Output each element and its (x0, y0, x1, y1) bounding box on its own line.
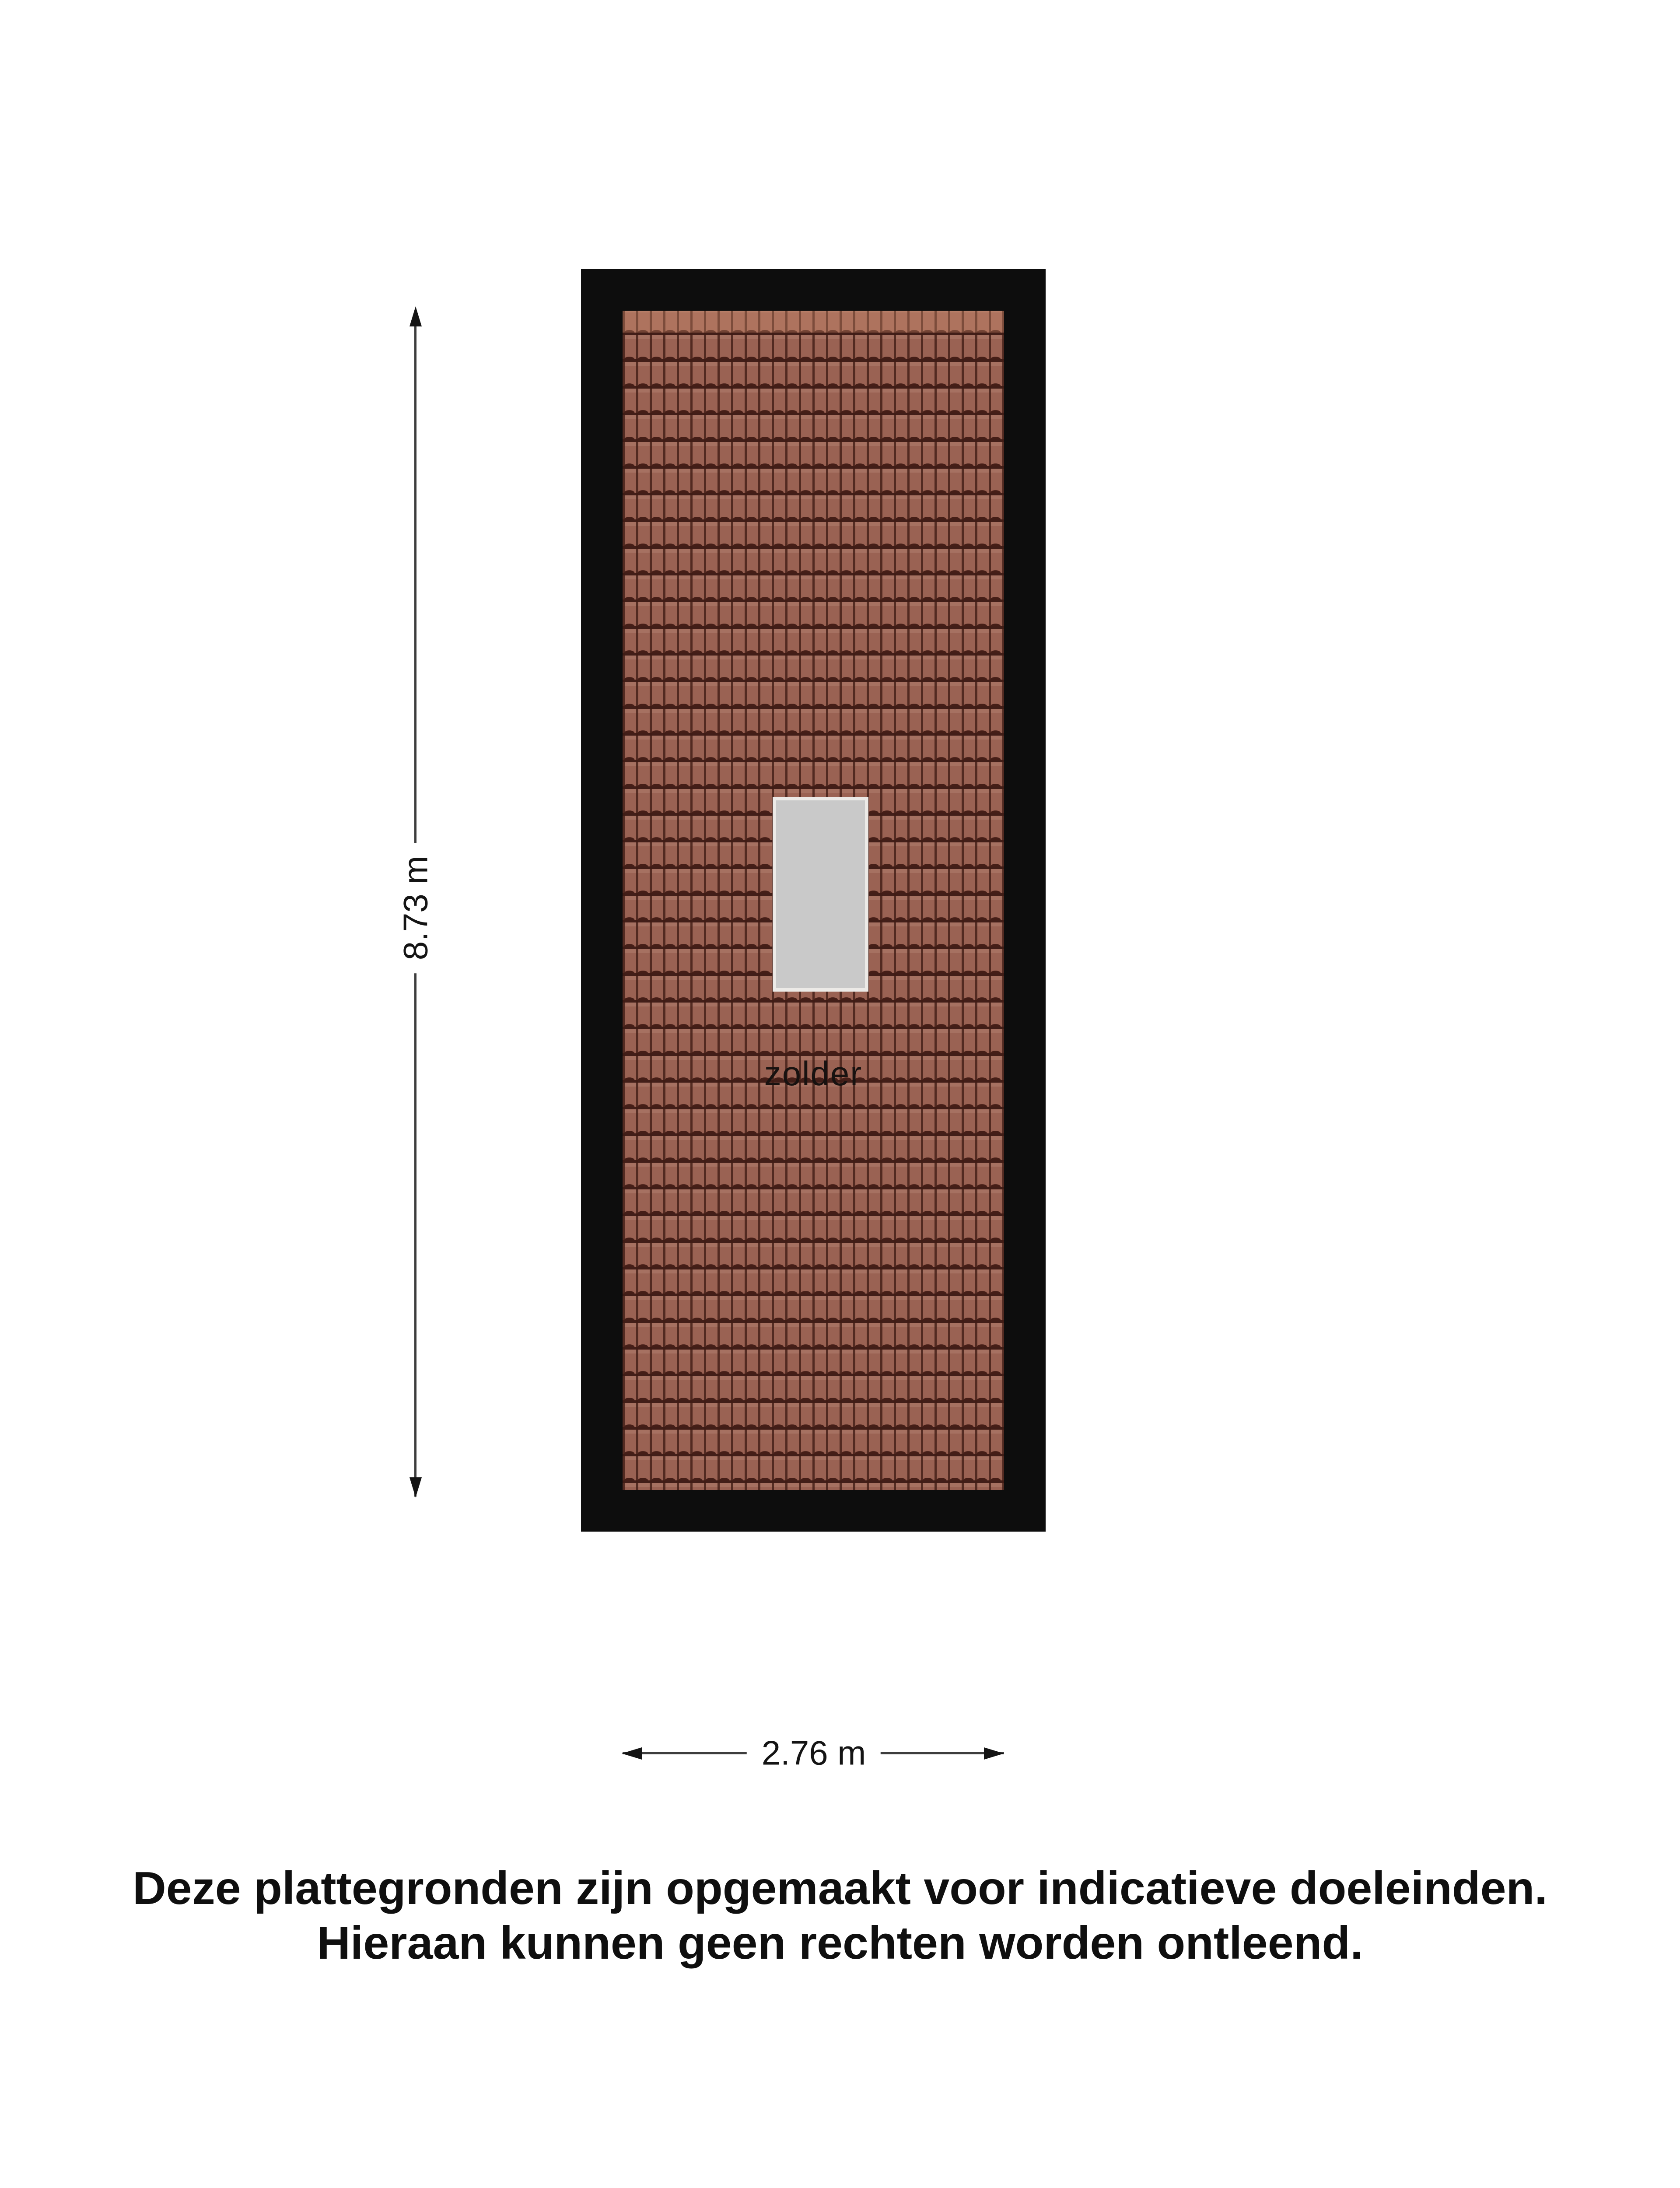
dimension-arrow-down-icon (409, 1477, 422, 1497)
height-dimension-label: 8.73 m (390, 843, 442, 973)
disclaimer-line-1: Deze plattegronden zijn opgemaakt voor i… (0, 1861, 1680, 1916)
dimension-arrow-left-icon (622, 1747, 642, 1760)
room-label: zolder (623, 1054, 1004, 1094)
disclaimer-line-2: Hieraan kunnen geen rechten worden ontle… (0, 1916, 1680, 1971)
skylight-window (773, 797, 868, 992)
disclaimer-text: Deze plattegronden zijn opgemaakt voor i… (0, 1861, 1680, 1971)
width-dimension-label: 2.76 m (747, 1729, 881, 1778)
dimension-arrow-right-icon (984, 1747, 1004, 1760)
dimension-arrow-up-icon (409, 306, 422, 326)
floorplan-attic: zolder (581, 269, 1046, 1532)
roof-tile-area: zolder (623, 311, 1004, 1490)
